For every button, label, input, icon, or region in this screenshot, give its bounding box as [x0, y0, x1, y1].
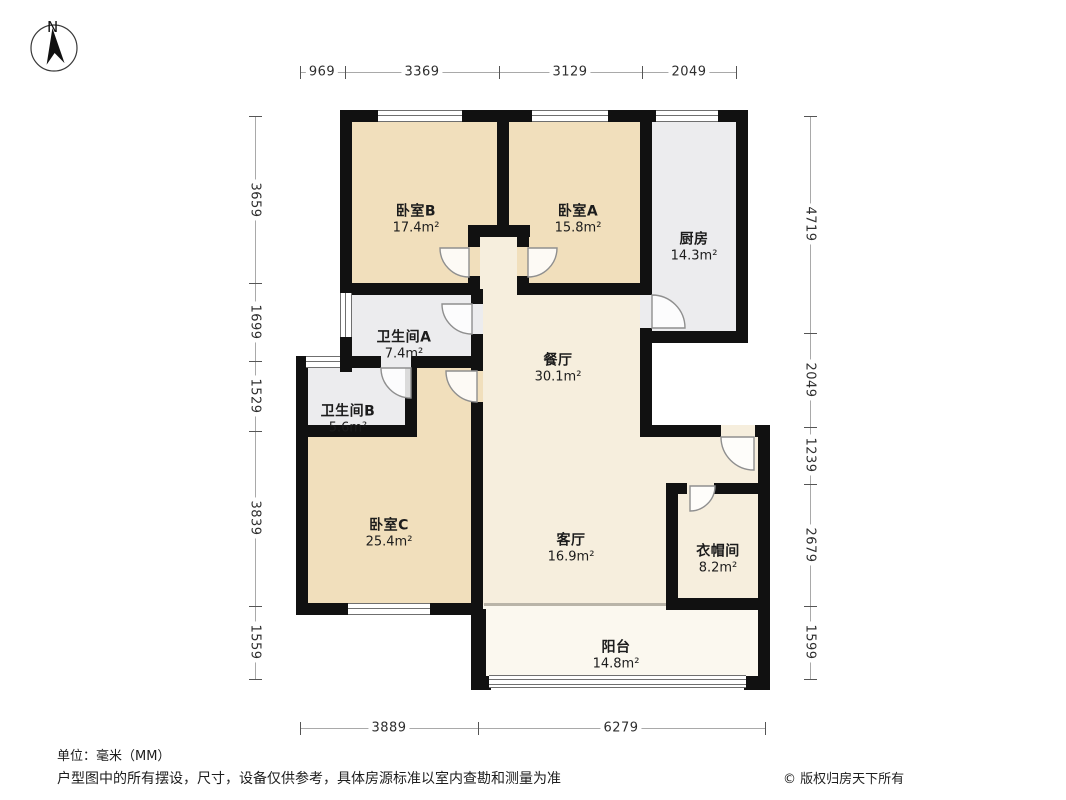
dim-tick [249, 116, 262, 117]
dim-top-4: 2049 [668, 65, 709, 80]
room-area: 25.4m² [366, 535, 413, 552]
cloakroom-door-arc [690, 486, 715, 511]
room-name: 卧室B [393, 202, 440, 220]
room-label-bedroom-c: 卧室C 25.4m² [366, 516, 413, 551]
room-label-bathroom-a: 卫生间A 7.4m² [377, 328, 432, 363]
dim-tick [499, 66, 500, 79]
room-area: 16.9m² [548, 550, 595, 567]
room-name: 厨房 [671, 230, 718, 248]
room-area: 14.3m² [671, 249, 718, 266]
floorplan-page: N 卧室B 17.4m² 卧室A 15.8m² 厨房 14.3m² 卫生间A 7… [0, 0, 1066, 800]
dim-tick [249, 361, 262, 362]
room-name: 餐厅 [535, 351, 582, 369]
plan-overlay-svg [0, 0, 1066, 800]
dim-right-5: 1599 [803, 621, 818, 662]
dim-tick [804, 679, 817, 680]
dim-tick [300, 66, 301, 79]
dim-left-2: 1699 [248, 301, 263, 342]
disclaimer-text: 户型图中的所有摆设，尺寸，设备仅供参考，具体房源标准以室内查勘和测量为准 [57, 768, 561, 788]
dim-right-1: 4719 [803, 203, 818, 244]
dim-bottom-2: 6279 [600, 721, 641, 736]
dim-tick [300, 722, 301, 735]
room-name: 阳台 [593, 638, 640, 656]
dim-tick [804, 333, 817, 334]
room-label-dining: 餐厅 30.1m² [535, 351, 582, 386]
room-name: 卫生间A [377, 328, 432, 346]
dim-tick [804, 484, 817, 485]
room-area: 30.1m² [535, 370, 582, 387]
bedroom-a-door-arc [528, 248, 557, 277]
dim-tick [804, 116, 817, 117]
kitchen-door-arc [652, 295, 685, 328]
dim-top-2: 3369 [401, 65, 442, 80]
room-name: 客厅 [548, 531, 595, 549]
dim-left-1: 3659 [248, 179, 263, 220]
room-area: 8.2m² [696, 561, 740, 578]
room-area: 17.4m² [393, 221, 440, 238]
dim-tick [804, 427, 817, 428]
room-label-bathroom-b: 卫生间B 5.6m² [321, 402, 376, 437]
dim-top-1: 969 [306, 65, 338, 80]
dim-tick [478, 722, 479, 735]
room-area: 14.8m² [593, 657, 640, 674]
copyright-text: © 版权归房天下所有 [783, 768, 904, 787]
dim-bottom-1: 3889 [368, 721, 409, 736]
room-area: 5.6m² [321, 421, 376, 438]
dim-left-4: 3839 [248, 497, 263, 538]
room-label-cloakroom: 衣帽间 8.2m² [696, 542, 740, 577]
room-label-kitchen: 厨房 14.3m² [671, 230, 718, 265]
room-label-living: 客厅 16.9m² [548, 531, 595, 566]
room-area: 15.8m² [555, 221, 602, 238]
room-area: 7.4m² [377, 347, 432, 364]
room-name: 卧室C [366, 516, 413, 534]
room-name: 卧室A [555, 202, 602, 220]
hallway-door-arc [446, 371, 477, 402]
bathroom-a-door-arc [442, 304, 472, 334]
dim-right-4: 2679 [803, 524, 818, 565]
dim-tick [804, 606, 817, 607]
dim-tick [642, 66, 643, 79]
room-name: 卫生间B [321, 402, 376, 420]
entry-door-arc [721, 437, 754, 470]
dim-top-3: 3129 [549, 65, 590, 80]
dim-tick [736, 66, 737, 79]
room-label-bedroom-a: 卧室A 15.8m² [555, 202, 602, 237]
dim-left-5: 1559 [248, 621, 263, 662]
compass-north-label: N [47, 18, 58, 36]
dim-tick [765, 722, 766, 735]
room-label-balcony: 阳台 14.8m² [593, 638, 640, 673]
bedroom-b-door-arc [440, 248, 469, 277]
room-label-bedroom-b: 卧室B 17.4m² [393, 202, 440, 237]
dim-tick [345, 66, 346, 79]
dim-tick [249, 431, 262, 432]
dim-right-3: 1239 [803, 434, 818, 475]
bathroom-b-door-arc [381, 368, 411, 398]
dim-tick [249, 606, 262, 607]
room-name: 衣帽间 [696, 542, 740, 560]
dim-tick [249, 679, 262, 680]
dim-tick [249, 283, 262, 284]
dim-left-3: 1529 [248, 375, 263, 416]
unit-note: 单位：毫米（MM） [57, 745, 170, 764]
dim-right-2: 2049 [803, 359, 818, 400]
